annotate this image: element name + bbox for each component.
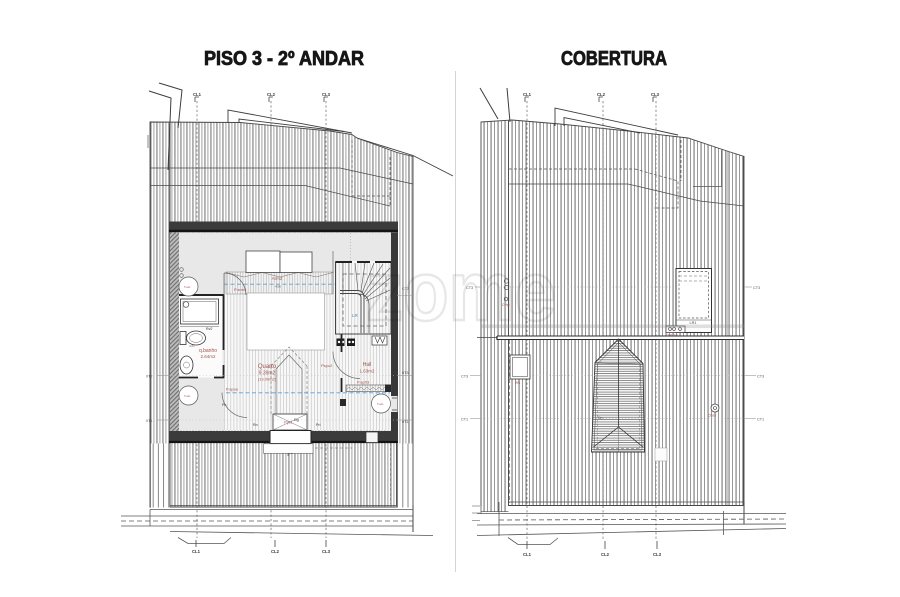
svg-text:CT1: CT1 <box>757 418 764 422</box>
svg-text:CL2: CL2 <box>601 552 610 557</box>
svg-text:(13.00m2): (13.00m2) <box>258 377 277 382</box>
svg-text:Dg: Dg <box>294 418 299 422</box>
svg-text:Rf1: Rf1 <box>515 381 521 385</box>
svg-text:PISO 3 - 2º ANDAR: PISO 3 - 2º ANDAR <box>204 48 364 70</box>
svg-text:0T1: 0T1 <box>146 419 153 423</box>
svg-text:Arm2: Arm2 <box>272 276 283 281</box>
svg-text:Rv2: Rv2 <box>206 327 212 331</box>
svg-text:LR: LR <box>352 313 359 318</box>
svg-text:T.elo: T.elo <box>184 394 191 398</box>
svg-text:P.arm6: P.arm6 <box>234 287 247 292</box>
svg-text:4.06: 4.06 <box>275 285 281 289</box>
svg-text:P.apoe: P.apoe <box>226 387 239 392</box>
svg-text:CT1: CT1 <box>461 418 468 422</box>
svg-text:CL1: CL1 <box>523 92 532 97</box>
svg-text:Quarto: Quarto <box>258 364 277 370</box>
svg-text:LR1: LR1 <box>690 321 697 325</box>
svg-text:Pspu2: Pspu2 <box>321 363 333 368</box>
svg-text:Chse: Chse <box>708 414 716 418</box>
svg-text:P.ap03: P.ap03 <box>357 380 370 385</box>
svg-text:CT3: CT3 <box>753 286 760 290</box>
svg-text:T.elo: T.elo <box>184 285 191 289</box>
svg-text:zome: zome <box>366 244 556 338</box>
svg-text:CL2: CL2 <box>597 92 606 97</box>
svg-text:CT3: CT3 <box>757 375 764 379</box>
svg-text:CL1: CL1 <box>192 549 201 554</box>
svg-text:Rn: Rn <box>253 423 258 427</box>
svg-text:Hall: Hall <box>363 362 372 368</box>
svg-text:Dn: Dn <box>598 416 603 420</box>
svg-text:CT3: CT3 <box>461 375 468 379</box>
svg-text:1.63m2: 1.63m2 <box>359 369 375 374</box>
svg-text:CL2: CL2 <box>271 549 280 554</box>
svg-text:0T1: 0T1 <box>402 420 409 424</box>
svg-text:CL1: CL1 <box>523 552 532 557</box>
svg-text:P.j01: P.j01 <box>284 420 293 425</box>
svg-text:CL1: CL1 <box>193 92 202 97</box>
svg-text:CL3: CL3 <box>322 92 331 97</box>
svg-text:COBERTURA: COBERTURA <box>561 48 667 70</box>
svg-text:CL3: CL3 <box>653 552 662 557</box>
svg-text:CL3: CL3 <box>651 92 660 97</box>
svg-text:0T2: 0T2 <box>146 375 153 379</box>
svg-text:0T3: 0T3 <box>402 371 409 375</box>
svg-text:T.elo: T.elo <box>377 402 384 406</box>
svg-text:Pri: Pri <box>316 423 321 427</box>
svg-text:2.64m2: 2.64m2 <box>200 354 216 359</box>
svg-text:CL3: CL3 <box>322 549 331 554</box>
svg-text:Pn: Pn <box>222 403 226 407</box>
svg-text:4.6v: 4.6v <box>189 344 195 348</box>
svg-text:CL2: CL2 <box>267 92 276 97</box>
